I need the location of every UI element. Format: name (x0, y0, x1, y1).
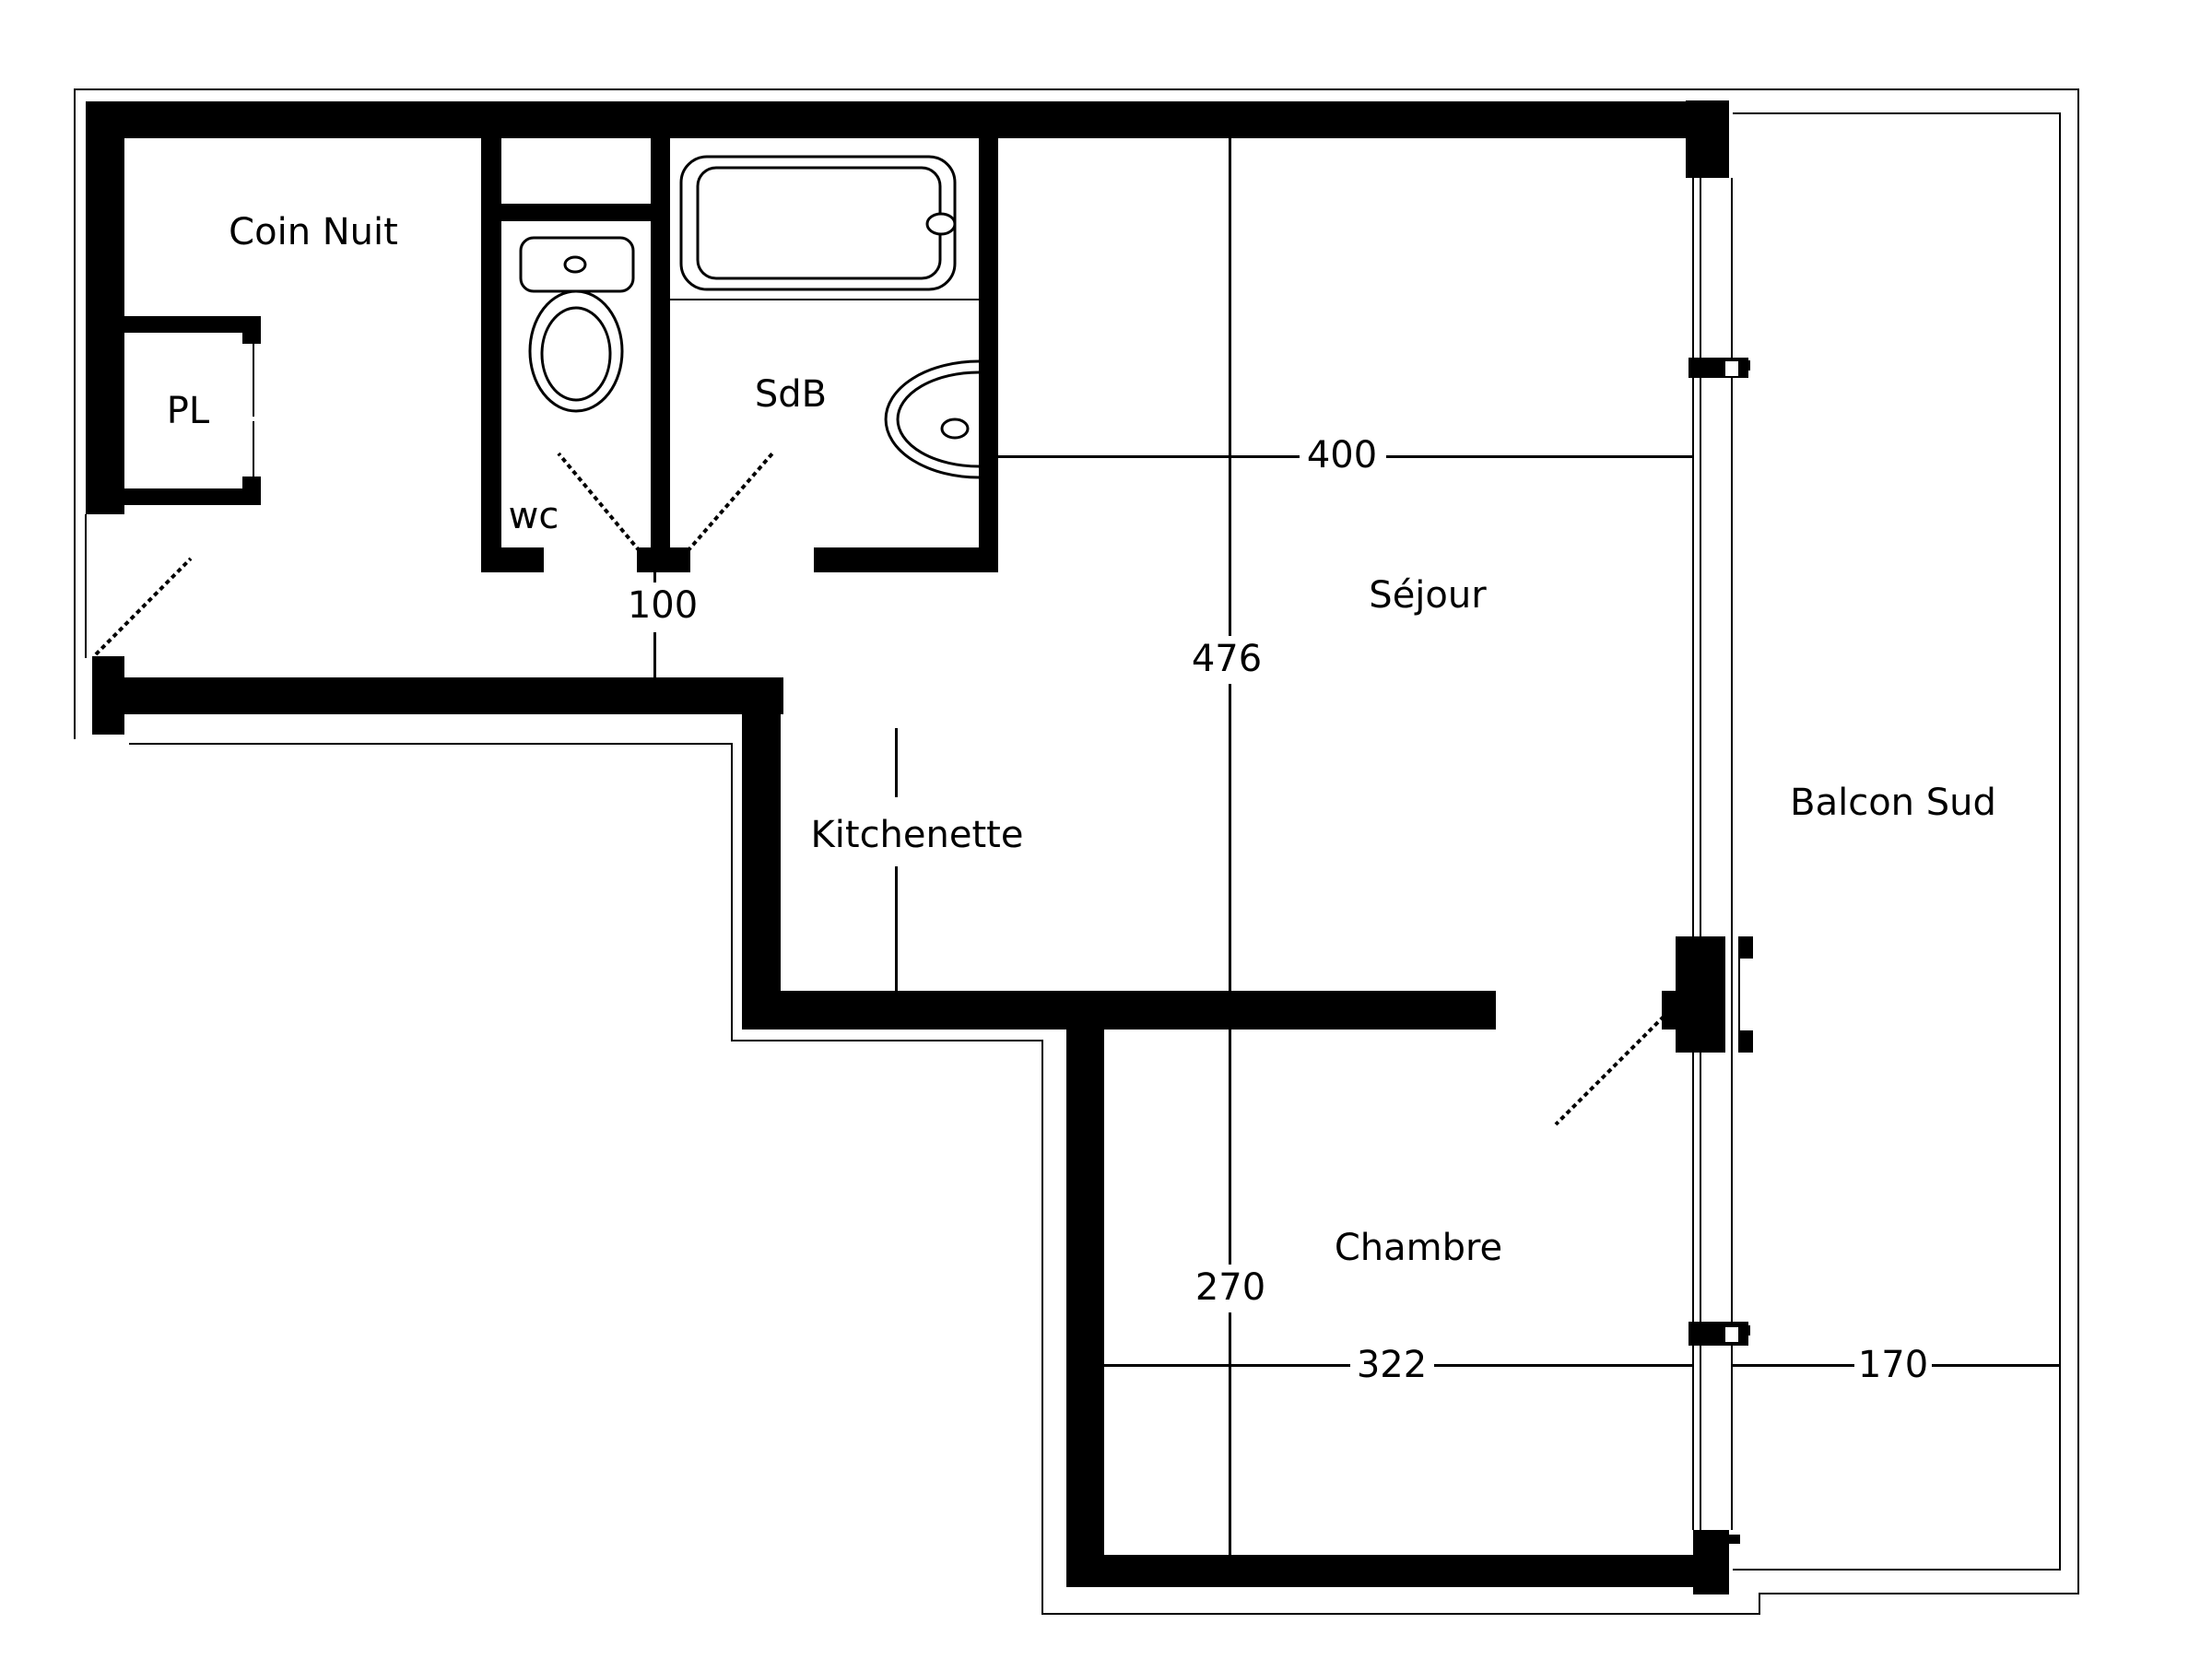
bathtub-icon (681, 157, 955, 289)
room-label-sejour: Séjour (1369, 577, 1486, 614)
dim-label-100: 100 (628, 587, 698, 624)
entry-door-swing-icon (96, 559, 191, 654)
room-label-kitchenette: Kitchenette (811, 817, 1024, 853)
room-label-pl: PL (167, 393, 209, 429)
room-label-wc: wc (509, 498, 559, 535)
room-label-balcon-sud: Balcon Sud (1790, 784, 1996, 821)
sdb-door-swing-icon (688, 453, 772, 551)
balcony-door-swing-icon (1556, 1005, 1676, 1124)
dim-label-322: 322 (1357, 1347, 1427, 1383)
room-label-coin-nuit: Coin Nuit (229, 214, 398, 251)
room-label-sdb: SdB (755, 376, 827, 413)
toilet-icon (521, 238, 633, 411)
wc-door-swing-icon (559, 453, 640, 551)
floor-plan: Coin Nuit PL wc SdB Séjour Kitchenette C… (0, 0, 2212, 1659)
dim-label-476: 476 (1192, 641, 1262, 677)
dim-label-400: 400 (1307, 437, 1377, 474)
dim-label-270: 270 (1195, 1269, 1265, 1306)
dim-label-170: 170 (1858, 1347, 1928, 1383)
washbasin-icon (886, 361, 979, 477)
room-label-chambre: Chambre (1335, 1230, 1502, 1266)
